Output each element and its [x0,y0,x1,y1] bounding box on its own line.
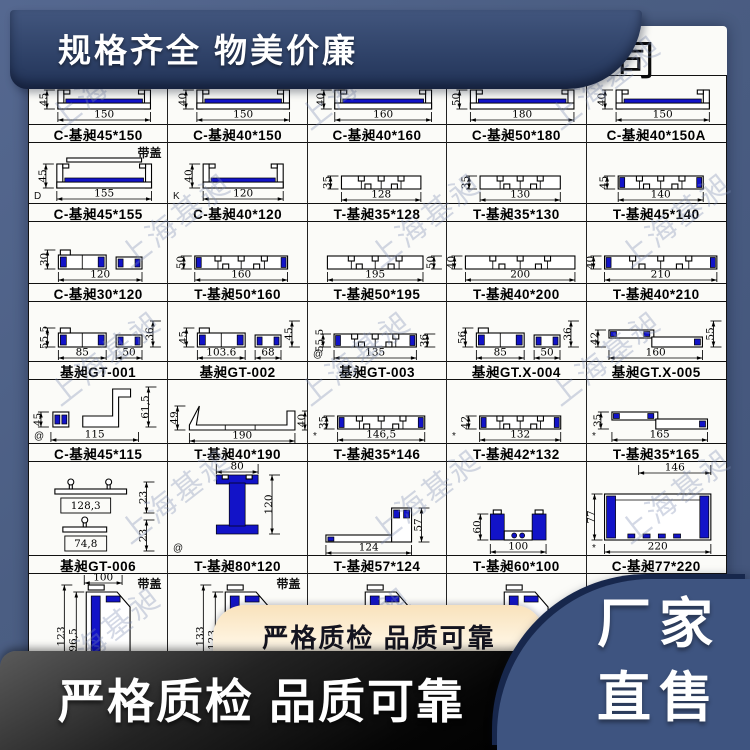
table-row: 855055,536基昶GT-001103.6684545基昶GT-002135… [29,302,726,380]
svg-text:36: 36 [562,327,574,340]
profile-drawing: 12835 [308,143,446,203]
profile-drawing: 20040 [447,222,585,283]
svg-text:*: * [313,431,317,442]
svg-text:40: 40 [596,93,608,106]
catalog-cell: 14677220*C-基昶77*220 [587,462,726,574]
svg-text:115: 115 [85,428,105,440]
svg-text:23: 23 [138,529,150,542]
profile-label: C-基昶50*180 [447,124,585,143]
catalog-cell: 14045T-基昶45*140 [587,143,726,222]
svg-text:40: 40 [177,93,189,106]
profile-drawing: 80120@ [168,462,306,555]
catalog-cell: 146,535*T-基昶35*146 [308,380,447,462]
svg-text:120: 120 [90,268,110,280]
profile-label: T-基昶57*124 [308,555,446,574]
svg-text:135: 135 [365,346,385,358]
svg-text:150: 150 [652,109,672,121]
catalog-page: 铝制品有限公司 15045C-基昶45*15015040C-基昶40*15016… [0,0,750,750]
svg-text:140: 140 [650,189,670,201]
profile-label: T-基昶35*146 [308,443,446,462]
svg-text:@: @ [313,349,323,360]
catalog-cell: 13555,536@基昶GT-003 [308,302,447,380]
catalog-cell: 855055,536基昶GT-001 [29,302,168,380]
svg-text:146: 146 [664,462,684,473]
svg-text:68: 68 [262,346,275,358]
svg-text:130: 130 [510,188,530,200]
profile-drawing: 15545带盖D [29,143,167,203]
profile-label: 基昶GT.X-005 [587,361,726,380]
svg-text:*: * [452,431,456,442]
profile-label: 基昶GT-002 [168,361,306,380]
svg-text:120: 120 [263,494,275,514]
svg-text:165: 165 [649,429,669,441]
svg-text:带盖: 带盖 [138,145,162,160]
profile-drawing: 14677220* [587,462,726,555]
catalog-cell: 12040KC-基昶40*120 [168,143,307,222]
profile-label: T-基昶45*140 [587,203,726,222]
svg-text:50: 50 [175,256,187,269]
svg-text:49: 49 [169,411,181,424]
profile-label: T-基昶42*132 [447,443,585,462]
profile-drawing: 16050 [168,222,306,283]
svg-text:45: 45 [598,176,610,189]
profile-drawing: 60100 [447,462,585,555]
svg-text:40: 40 [184,169,196,182]
svg-text:40: 40 [447,256,457,269]
catalog-cell: 80120@T-基昶80*120 [168,462,307,574]
svg-text:195: 195 [365,268,385,280]
svg-text:132: 132 [510,428,530,440]
catalog-cell: 13035T-基昶35*130 [447,143,586,222]
profile-label: 基昶GT-001 [29,361,167,380]
svg-text:*: * [592,543,596,554]
svg-text:@: @ [173,543,183,554]
profile-label: C-基昶45*115 [29,443,167,462]
svg-text:@: @ [34,431,44,442]
catalog-cell: 13242*T-基昶42*132 [447,380,586,462]
table-row: 12030C-基昶30*12016050T-基昶50*16019550T-基昶5… [29,222,726,302]
svg-text:160: 160 [645,347,665,359]
svg-text:150: 150 [94,108,114,120]
svg-text:155: 155 [94,187,114,199]
catalog-cell: 16535*T-基昶35*165 [587,380,726,462]
svg-text:80: 80 [231,462,244,473]
profile-drawing: 1154561,5@ [29,380,167,443]
profile-label: T-基昶80*120 [168,555,306,574]
svg-text:50: 50 [451,93,463,106]
svg-text:220: 220 [647,541,667,553]
profile-label: C-基昶45*150 [29,124,167,143]
svg-text:36: 36 [144,327,156,340]
bottom-banner-text: 严格质检 品质可靠 [58,651,465,750]
profile-drawing: 14045 [587,143,726,203]
profile-drawing: 12040K [168,143,306,203]
svg-text:60: 60 [472,520,484,533]
profile-drawing: 19550 [308,222,446,283]
svg-text:100: 100 [93,574,113,584]
profile-label: T-基昶40*200 [447,283,585,302]
svg-text:61,5: 61,5 [139,395,151,418]
svg-text:D: D [34,191,41,202]
svg-text:96,5: 96,5 [67,628,79,651]
catalog-cell: 85505636基昶GT.X-004 [447,302,586,380]
svg-text:45: 45 [38,93,50,106]
svg-text:45: 45 [178,331,190,344]
profile-label: C-基昶40*120 [168,203,306,222]
svg-text:35: 35 [591,414,603,427]
profile-label: T-基昶40*210 [587,283,726,302]
direct-sale-line2: 直售 [579,661,739,735]
svg-text:45: 45 [32,413,44,426]
svg-text:124: 124 [359,541,379,553]
svg-text:160: 160 [373,108,393,120]
profile-drawing: 146,535* [308,380,446,443]
svg-text:120: 120 [234,187,254,199]
profile-label: T-基昶60*100 [447,555,585,574]
profile-drawing: 1904940 [168,380,306,443]
svg-text:42: 42 [460,416,472,429]
profile-label: T-基昶50*160 [168,283,306,302]
profile-label: T-基昶40*190 [168,443,306,462]
catalog-cell: 12030C-基昶30*120 [29,222,168,302]
catalog-cell: 19550T-基昶50*195 [308,222,447,302]
svg-text:40: 40 [587,256,597,269]
svg-text:57: 57 [412,518,424,531]
catalog-cell: 16050T-基昶50*160 [168,222,307,302]
catalog-cell: 12835T-基昶35*128 [308,143,447,222]
profile-label: C-基昶40*160 [308,124,446,143]
profile-label: 基昶GT.X-004 [447,361,585,380]
catalog-cell: 21040T-基昶40*210 [587,222,726,302]
svg-text:带盖: 带盖 [277,576,301,591]
profile-label: T-基昶35*130 [447,203,585,222]
profile-drawing: 15040 [587,76,726,124]
profile-label: C-基昶40*150A [587,124,726,143]
profile-drawing: 103.6684545 [168,302,306,361]
svg-text:128: 128 [371,188,391,200]
profile-drawing: 57124 [308,462,446,555]
svg-text:35: 35 [321,176,333,189]
bottom-banner: 严格质检 品质可靠 [0,651,565,750]
svg-text:K: K [173,191,180,202]
profile-label: 基昶GT-006 [29,555,167,574]
profile-label: C-基昶40*150 [168,124,306,143]
table-row: 15545带盖DC-基昶45*15512040KC-基昶40*12012835T… [29,143,726,222]
svg-text:56: 56 [457,331,469,344]
svg-text:210: 210 [650,269,670,281]
profile-drawing: 13035 [447,143,585,203]
svg-text:40: 40 [315,93,327,106]
svg-text:55: 55 [704,327,716,340]
svg-text:42: 42 [588,332,600,345]
quality-pill-text: 严格质检 品质可靠 [262,618,495,655]
svg-text:160: 160 [232,268,252,280]
profile-label: 基昶GT-003 [308,361,446,380]
profile-label: T-基昶35*128 [308,203,446,222]
profile-drawing: 128,374,82323 [29,462,167,555]
catalog-cell: 20040T-基昶40*200 [447,222,586,302]
table-row: 1154561,5@C-基昶45*1151904940T-基昶40*190146… [29,380,726,462]
profile-drawing: 1604255 [587,302,726,361]
catalog-cell: 1604255基昶GT.X-005 [587,302,726,380]
svg-text:带盖: 带盖 [138,576,162,591]
profile-drawing: 855055,536 [29,302,167,361]
direct-sale-line1: 厂家 [579,587,739,661]
svg-text:74,8: 74,8 [74,538,97,550]
profile-label: C-基昶77*220 [587,555,726,574]
catalog-cell: 1904940T-基昶40*190 [168,380,307,462]
svg-text:35: 35 [460,176,472,189]
svg-text:77: 77 [587,510,598,523]
top-banner: 规格齐全 物美价廉 [10,10,642,89]
catalog-cell: 60100T-基昶60*100 [447,462,586,574]
svg-text:36: 36 [418,334,430,347]
svg-text:103.6: 103.6 [207,346,237,358]
profile-label: T-基昶35*165 [587,443,726,462]
profile-label: C-基昶45*155 [29,203,167,222]
svg-text:50: 50 [122,346,135,358]
profile-label: C-基昶30*120 [29,283,167,302]
svg-text:40: 40 [296,414,306,427]
svg-text:200: 200 [510,268,530,280]
profile-drawing: 13242* [447,380,585,443]
catalog-cell: 57124T-基昶57*124 [308,462,447,574]
svg-text:133: 133 [195,626,207,646]
svg-text:45: 45 [37,169,49,182]
svg-text:150: 150 [234,108,254,120]
svg-text:128,3: 128,3 [71,500,101,512]
catalog-cell: 15040C-基昶40*150A [587,76,726,143]
svg-text:*: * [592,431,596,442]
profile-drawing: 16535* [587,380,726,443]
svg-text:45: 45 [283,327,295,340]
svg-text:35: 35 [317,416,329,429]
svg-text:23: 23 [138,491,150,504]
top-banner-text: 规格齐全 物美价廉 [58,10,358,89]
svg-text:146,5: 146,5 [366,428,396,440]
svg-text:85: 85 [76,346,89,358]
table-row: 128,374,82323基昶GT-00680120@T-基昶80*120571… [29,462,726,574]
svg-text:85: 85 [494,346,507,358]
svg-text:180: 180 [512,108,532,120]
profile-drawing: 85505636 [447,302,585,361]
catalog-cell: 15545带盖DC-基昶45*155 [29,143,168,222]
profile-drawing: 12030 [29,222,167,283]
svg-text:30: 30 [38,253,50,266]
catalog-cell: 1154561,5@C-基昶45*115 [29,380,168,462]
profile-drawing: 13555,536@ [308,302,446,361]
svg-text:55,5: 55,5 [38,326,50,349]
svg-text:123: 123 [55,626,67,646]
profile-drawing: 21040 [587,222,726,283]
svg-text:190: 190 [233,429,253,441]
profile-label: T-基昶50*195 [308,283,446,302]
svg-text:100: 100 [508,540,528,552]
svg-text:50: 50 [541,346,554,358]
catalog-cell: 128,374,82323基昶GT-006 [29,462,168,574]
svg-text:50: 50 [425,256,437,269]
catalog-cell: 103.6684545基昶GT-002 [168,302,307,380]
